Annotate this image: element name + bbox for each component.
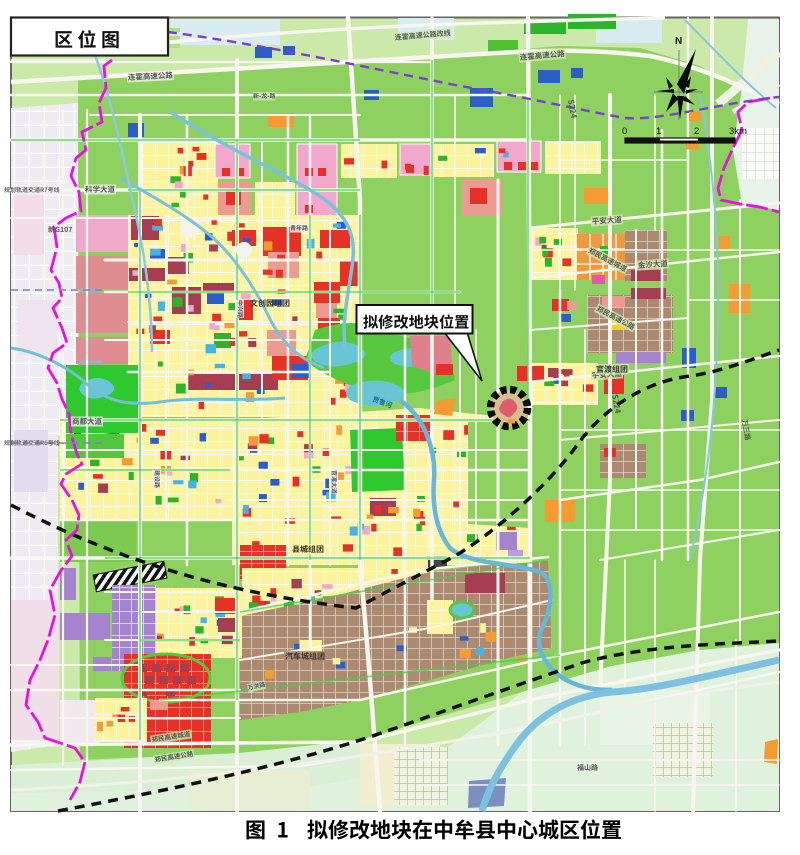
svg-text:N: N [675, 36, 682, 47]
svg-text:2: 2 [694, 126, 699, 137]
svg-text:0: 0 [622, 126, 627, 137]
svg-text:3km: 3km [729, 126, 747, 137]
svg-text:1: 1 [656, 126, 661, 137]
